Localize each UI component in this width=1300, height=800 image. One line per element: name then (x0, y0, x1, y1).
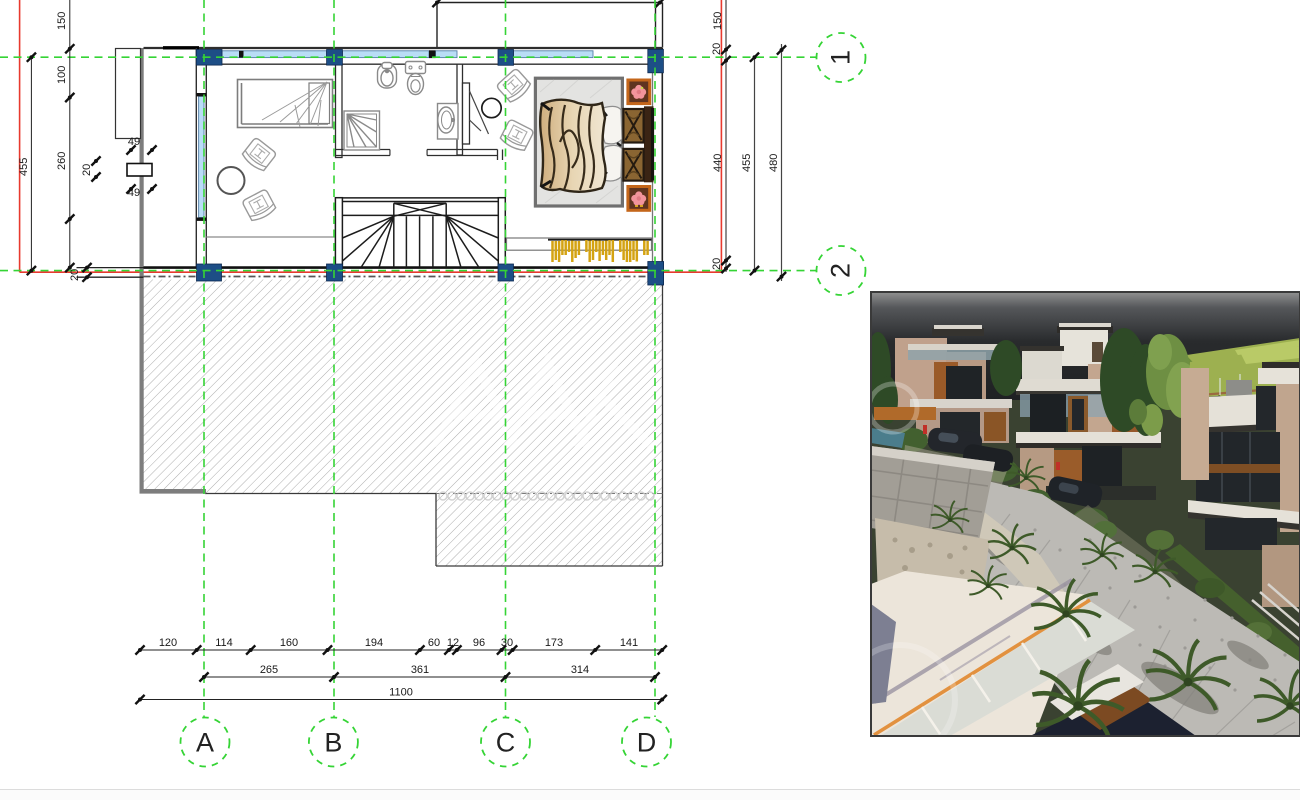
svg-text:150: 150 (712, 12, 724, 30)
svg-text:314: 314 (571, 664, 589, 676)
svg-text:A: A (196, 728, 214, 758)
svg-text:440: 440 (712, 154, 724, 172)
svg-text:20: 20 (69, 269, 81, 281)
svg-text:120: 120 (159, 637, 177, 649)
svg-text:160: 160 (280, 637, 298, 649)
svg-text:20: 20 (711, 43, 723, 55)
svg-text:C: C (496, 728, 516, 758)
svg-text:455: 455 (741, 154, 753, 172)
svg-text:265: 265 (260, 664, 278, 676)
svg-text:114: 114 (215, 637, 233, 649)
svg-text:480: 480 (768, 154, 780, 172)
svg-text:173: 173 (545, 637, 563, 649)
svg-text:1100: 1100 (389, 687, 413, 699)
svg-text:361: 361 (411, 664, 429, 676)
svg-text:12: 12 (447, 637, 459, 649)
svg-text:141: 141 (620, 637, 638, 649)
svg-text:2: 2 (826, 263, 856, 278)
svg-text:20: 20 (81, 164, 93, 176)
svg-text:20: 20 (711, 258, 723, 270)
svg-text:96: 96 (473, 637, 485, 649)
svg-text:B: B (324, 728, 342, 758)
svg-text:1: 1 (826, 50, 856, 65)
svg-text:100: 100 (56, 66, 68, 84)
svg-text:194: 194 (365, 637, 383, 649)
svg-text:260: 260 (56, 152, 68, 170)
svg-text:30: 30 (501, 637, 513, 649)
svg-text:60: 60 (428, 637, 440, 649)
svg-text:150: 150 (56, 12, 68, 30)
svg-text:D: D (637, 728, 657, 758)
svg-text:455: 455 (18, 158, 30, 176)
